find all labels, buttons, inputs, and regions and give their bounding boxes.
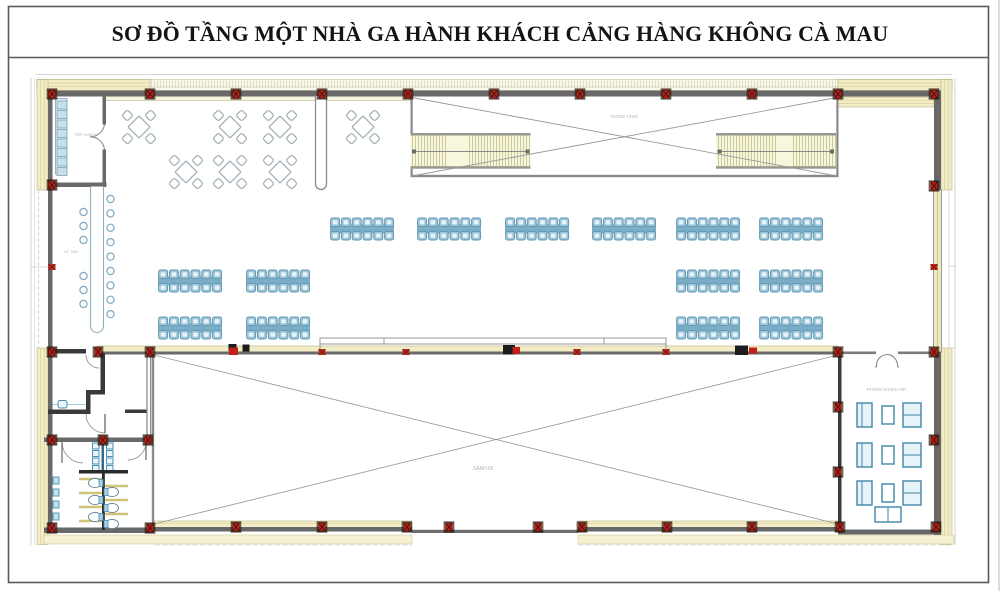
svg-text:SƠ ĐỒ TẦNG MỘT NHÀ GA HÀNH KHÁ: SƠ ĐỒ TẦNG MỘT NHÀ GA HÀNH KHÁCH CẢNG HÀ…: [112, 22, 889, 46]
svg-text:THÔNG TẦNG: THÔNG TẦNG: [610, 114, 638, 119]
svg-text:PHÒNG KHÁCH VIP: PHÒNG KHÁCH VIP: [867, 387, 906, 392]
svg-text:SẢNH ĐI: SẢNH ĐI: [473, 465, 493, 472]
svg-text:LỄ TÂN: LỄ TÂN: [64, 249, 78, 254]
svg-text:TIẾP KHÁCH: TIẾP KHÁCH: [74, 132, 98, 137]
